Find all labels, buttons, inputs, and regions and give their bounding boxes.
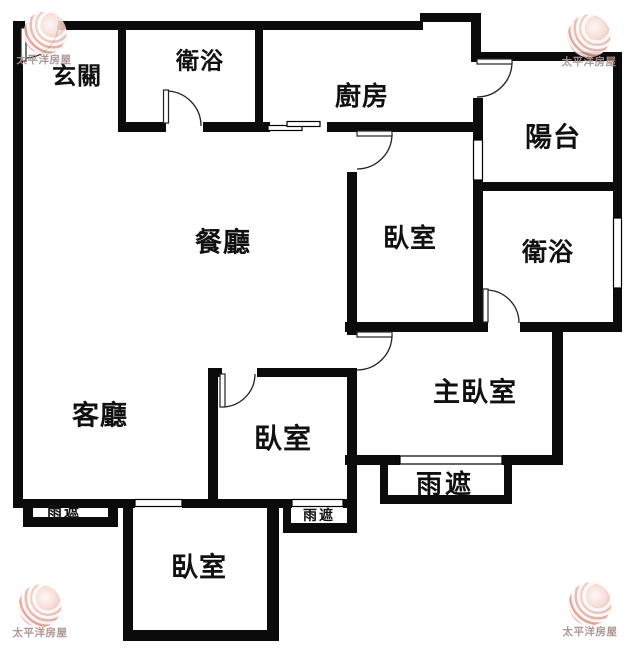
- window-bedroom2: [292, 500, 343, 507]
- label-rain-canopy-1: 雨遮: [47, 505, 81, 520]
- floorplan-drawing: [0, 0, 630, 652]
- label-rain-canopy-3: 雨遮: [416, 471, 474, 497]
- door-master-bedroom: [357, 332, 392, 370]
- brand-logo-icon: [562, 560, 630, 632]
- room-label-bathroom-1: 衛浴: [176, 50, 224, 73]
- room-label-bedroom-2: 臥室: [254, 425, 312, 453]
- room-label-dining-room: 餐廳: [195, 230, 251, 257]
- door-bedroom-2: [220, 374, 255, 407]
- window-master-bedroom: [400, 456, 502, 464]
- room-label-entry: 玄關: [52, 65, 102, 89]
- window-bedroom1-balcony: [474, 140, 483, 180]
- door-bathroom-2: [483, 289, 519, 323]
- windows: [135, 122, 622, 507]
- window-bedroom3: [135, 500, 182, 507]
- floorplan-page: 玄關 衛浴 廚房 陽台 餐廳 臥室 衛浴 客廳 主臥室 臥室 臥室 雨遮 雨遮 …: [0, 0, 630, 652]
- room-label-living-room: 客廳: [72, 403, 128, 430]
- room-label-master-bedroom: 主臥室: [433, 380, 517, 407]
- room-label-bedroom-3: 臥室: [171, 555, 227, 582]
- door-bedroom-1: [357, 131, 392, 169]
- door-kitchen-balcony: [477, 59, 512, 97]
- room-label-bathroom-2: 衛浴: [522, 241, 574, 266]
- room-label-balcony: 陽台: [525, 125, 581, 152]
- label-rain-canopy-2: 雨遮: [303, 508, 335, 522]
- brand-logo-icon: [17, 0, 89, 61]
- brand-logo-text: 太平洋房屋: [562, 57, 617, 68]
- walls: [13, 13, 622, 641]
- brand-logo-text: 太平洋房屋: [17, 55, 72, 66]
- door-bathroom-1: [164, 90, 202, 126]
- kitchen-slider-panel-2: [287, 122, 320, 127]
- brand-logo-text: 太平洋房屋: [563, 627, 618, 638]
- room-label-kitchen: 廚房: [335, 83, 389, 109]
- brand-logo-text: 太平洋房屋: [13, 628, 68, 639]
- brand-logo-icon: [12, 562, 84, 634]
- room-label-bedroom-1: 臥室: [383, 225, 437, 251]
- window-bathroom2: [614, 218, 622, 288]
